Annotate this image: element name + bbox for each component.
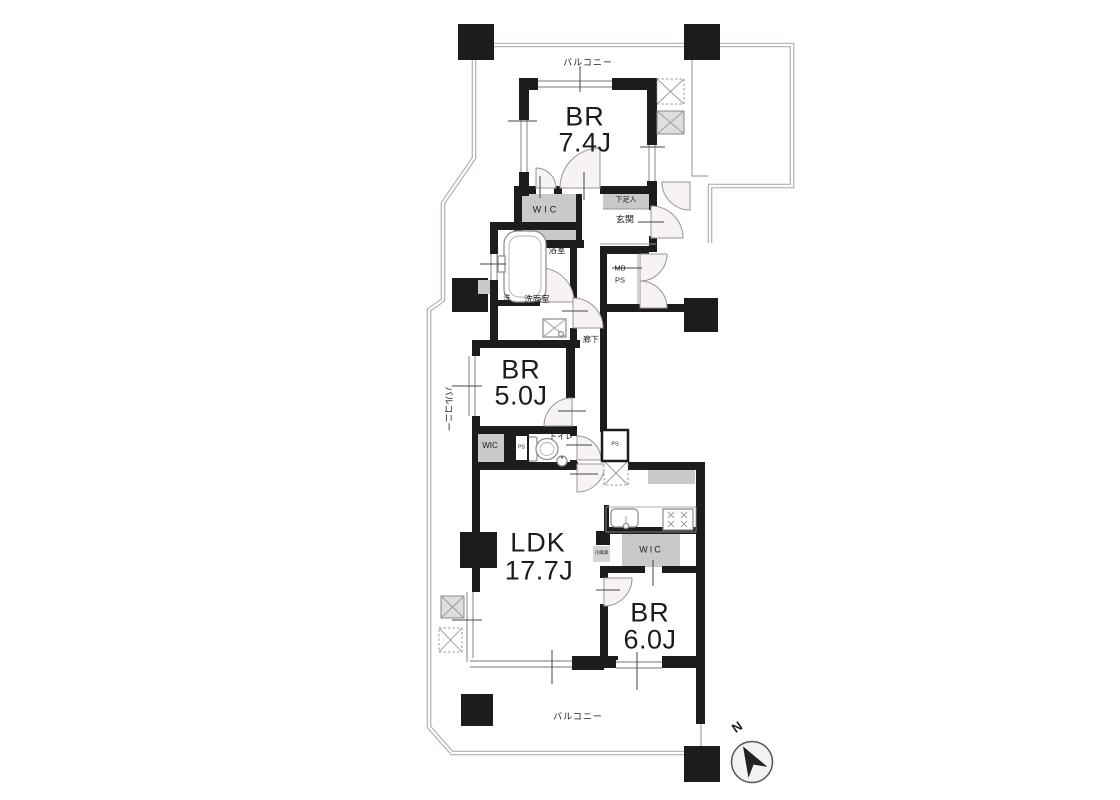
hatch-box-dashed <box>439 628 462 652</box>
toilet-label: トイレ <box>549 433 573 441</box>
hatch-box-dashed <box>604 461 628 485</box>
porch-door <box>662 182 690 210</box>
kitchen-sink-icon <box>611 509 638 529</box>
shoe-cabinet-label: 下足入 <box>616 197 637 204</box>
bedroom3-door <box>604 578 632 606</box>
hand-basin-icon <box>557 456 567 466</box>
compass-icon <box>732 741 773 783</box>
kitchen-counter-top <box>648 468 695 484</box>
floorplan-drawing <box>0 0 1120 800</box>
bedroom3-size: 6.0J <box>623 627 676 654</box>
hatch-box-solid <box>657 111 684 134</box>
bathroom-label: 浴室 <box>548 246 565 255</box>
pipe-space-right-label: PS <box>611 442 618 448</box>
hatch-box-solid <box>441 596 464 618</box>
washer-label: 洗 <box>503 294 511 302</box>
hallway-label: 廊下 <box>583 336 599 344</box>
pillar <box>461 694 493 726</box>
meter-box-door-upper <box>640 254 667 281</box>
hatch-box-dashed <box>657 79 684 104</box>
bedroom3-name: BR <box>630 600 670 627</box>
wic1-label: WIC <box>533 206 560 215</box>
entrance-label: 玄関 <box>616 216 634 225</box>
toilet-door <box>577 436 601 460</box>
ticks <box>452 66 665 690</box>
wic2-label: WIC <box>482 442 498 450</box>
living-name: LDK <box>510 530 566 557</box>
washer-pan-icon <box>543 319 566 337</box>
balcony-bottom-label: バルコニー <box>553 713 603 722</box>
balcony-left-label: バルコニー <box>444 387 453 432</box>
stove-icon <box>663 509 693 530</box>
pillar <box>458 24 494 60</box>
bedroom2-door <box>544 398 572 426</box>
pillar <box>684 746 720 782</box>
pillar <box>684 24 720 60</box>
meter-box-label: MB <box>614 264 625 272</box>
washroom-label: 洗面室 <box>524 295 550 304</box>
wic1-door <box>536 168 556 188</box>
ldk-door <box>577 464 605 492</box>
floorplan-page: バルコニー BR 7.4J WIC 下足入 玄関 MB PS 浴室 洗 洗面室 … <box>0 0 1120 800</box>
bedroom1-name: BR <box>565 104 605 131</box>
bedroom2-size: 5.0J <box>494 383 547 410</box>
wall-niche <box>478 280 491 294</box>
washroom-door <box>573 298 603 328</box>
bedroom1-size: 7.4J <box>558 130 611 157</box>
refrigerator-label: 冷蔵庫 <box>595 551 609 556</box>
pipe-space-label: PS <box>615 276 625 284</box>
wic3-label: WIC <box>639 546 663 555</box>
pillar <box>684 298 718 332</box>
pillar <box>460 532 497 568</box>
balcony-top-label: バルコニー <box>563 59 613 68</box>
meter-box-door-lower <box>640 281 667 308</box>
pipe-space-small-label: PS <box>518 446 525 451</box>
bedroom2-name: BR <box>501 357 541 384</box>
living-size: 17.7J <box>505 558 574 585</box>
